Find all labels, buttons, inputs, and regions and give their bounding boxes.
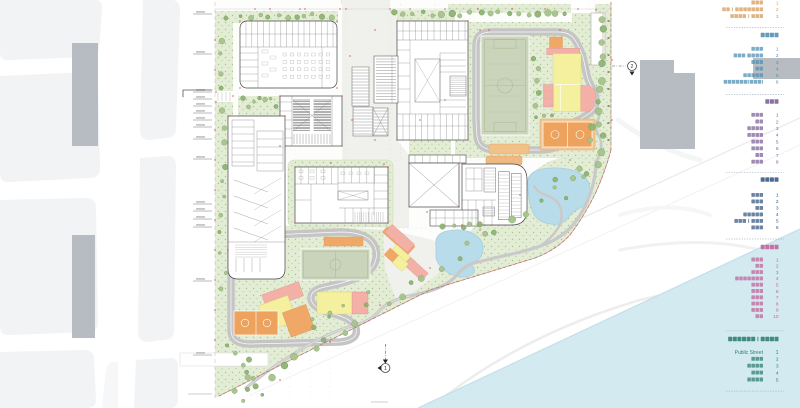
svg-text:8: 8 xyxy=(776,160,779,166)
svg-text:2: 2 xyxy=(776,7,779,13)
svg-text:3: 3 xyxy=(776,206,779,212)
svg-text:9: 9 xyxy=(776,308,779,314)
svg-text:3: 3 xyxy=(776,126,779,132)
svg-text:6: 6 xyxy=(776,146,779,152)
svg-text:5: 5 xyxy=(776,139,779,145)
svg-text:1: 1 xyxy=(776,47,779,53)
svg-text:4: 4 xyxy=(776,276,779,282)
svg-text:1: 1 xyxy=(384,366,387,372)
svg-text:6: 6 xyxy=(776,80,779,86)
svg-text:7: 7 xyxy=(776,295,779,301)
svg-text:7: 7 xyxy=(776,153,779,159)
svg-text:2: 2 xyxy=(776,119,779,125)
svg-text:5: 5 xyxy=(776,73,779,79)
svg-text:8: 8 xyxy=(776,301,779,307)
svg-text:3: 3 xyxy=(776,270,779,276)
svg-text:3: 3 xyxy=(776,60,779,66)
svg-text:6: 6 xyxy=(776,289,779,295)
svg-text:1: 1 xyxy=(776,257,779,263)
svg-text:6: 6 xyxy=(776,225,779,231)
svg-text:1: 1 xyxy=(776,193,779,199)
svg-text:5: 5 xyxy=(776,377,779,383)
svg-text:2: 2 xyxy=(776,199,779,205)
svg-text:10: 10 xyxy=(773,314,779,320)
svg-text:5: 5 xyxy=(776,219,779,225)
svg-text:1: 1 xyxy=(776,113,779,119)
svg-text:2: 2 xyxy=(776,264,779,270)
svg-text:5: 5 xyxy=(776,283,779,289)
svg-text:4: 4 xyxy=(776,133,779,139)
svg-text:2: 2 xyxy=(631,64,634,70)
svg-text:1: 1 xyxy=(776,0,779,6)
svg-text:3: 3 xyxy=(776,14,779,20)
svg-text:3: 3 xyxy=(776,364,779,370)
svg-text:4: 4 xyxy=(776,66,779,72)
svg-text:4: 4 xyxy=(776,212,779,218)
svg-text:4: 4 xyxy=(776,370,779,376)
svg-text:1: 1 xyxy=(776,350,779,356)
svg-text:2: 2 xyxy=(776,357,779,363)
svg-text:2: 2 xyxy=(776,53,779,59)
svg-text:Public Street: Public Street xyxy=(735,350,764,356)
